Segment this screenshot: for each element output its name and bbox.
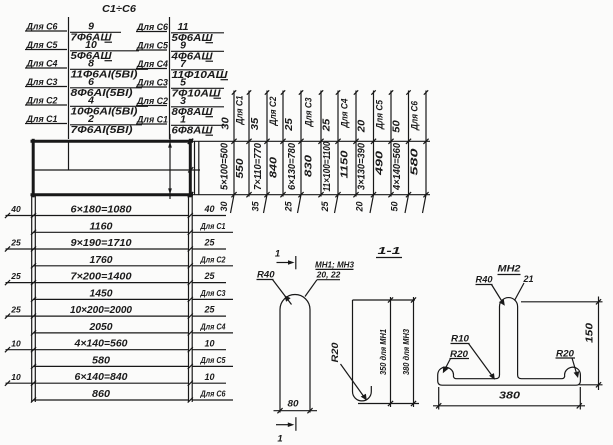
svg-text:9: 9	[180, 39, 186, 51]
svg-text:150: 150	[584, 323, 596, 343]
svg-text:25: 25	[203, 305, 215, 315]
svg-text:7×110=770: 7×110=770	[253, 143, 264, 190]
svg-text:1160: 1160	[90, 221, 113, 232]
svg-text:1: 1	[180, 113, 186, 125]
svg-text:30: 30	[221, 117, 232, 130]
svg-text:20, 22: 20, 22	[316, 270, 341, 280]
svg-text:R20: R20	[450, 349, 468, 359]
svg-text:10: 10	[204, 372, 214, 382]
svg-text:R20: R20	[556, 349, 574, 359]
svg-text:МН1; МН3: МН1; МН3	[315, 259, 354, 269]
svg-text:Для С3: Для С3	[304, 98, 314, 128]
svg-text:Для С6: Для С6	[136, 22, 169, 32]
svg-text:Для С2: Для С2	[26, 95, 58, 105]
svg-text:25: 25	[203, 271, 215, 281]
svg-text:25: 25	[10, 271, 21, 281]
svg-text:1150: 1150	[339, 150, 351, 178]
svg-text:580: 580	[92, 355, 110, 366]
svg-text:40: 40	[203, 204, 214, 214]
svg-text:11: 11	[178, 21, 189, 33]
svg-text:10: 10	[11, 372, 21, 382]
svg-text:4×140=560: 4×140=560	[392, 143, 403, 191]
svg-text:840: 840	[268, 157, 280, 178]
svg-text:6×180=1080: 6×180=1080	[71, 204, 132, 216]
svg-text:Для С1: Для С1	[200, 221, 226, 231]
svg-text:7Ф10АШ: 7Ф10АШ	[172, 89, 221, 100]
svg-text:R40: R40	[257, 270, 275, 280]
svg-text:580: 580	[409, 148, 421, 175]
svg-text:9: 9	[88, 20, 94, 32]
svg-text:Для С5: Для С5	[375, 99, 385, 130]
svg-text:380: 380	[499, 390, 520, 402]
svg-text:25: 25	[284, 201, 294, 213]
svg-text:11×100=1100: 11×100=1100	[322, 141, 333, 191]
svg-text:Для С3: Для С3	[136, 77, 168, 87]
svg-text:2: 2	[87, 113, 94, 125]
svg-text:R20: R20	[330, 342, 341, 363]
svg-text:1760: 1760	[90, 255, 113, 266]
svg-text:80: 80	[288, 399, 300, 410]
svg-text:Для С6: Для С6	[410, 100, 420, 131]
svg-text:1: 1	[275, 249, 280, 260]
svg-text:380 для МН3: 380 для МН3	[401, 329, 411, 375]
svg-text:25: 25	[322, 118, 333, 132]
svg-text:5: 5	[180, 76, 186, 88]
svg-text:30: 30	[219, 201, 229, 211]
svg-text:40: 40	[10, 204, 21, 214]
svg-text:Для С2: Для С2	[200, 254, 226, 264]
svg-text:Для С5: Для С5	[200, 355, 226, 365]
svg-text:Для С4: Для С4	[136, 59, 168, 69]
svg-text:35: 35	[251, 201, 261, 212]
svg-text:5×100=500: 5×100=500	[220, 143, 231, 190]
svg-text:1: 1	[277, 434, 282, 445]
svg-text:С1÷С6: С1÷С6	[102, 4, 136, 15]
svg-text:Для С4: Для С4	[340, 99, 350, 129]
svg-text:4: 4	[87, 94, 94, 106]
svg-text:490: 490	[374, 151, 386, 177]
svg-text:Для С4: Для С4	[200, 322, 226, 332]
svg-text:50: 50	[390, 201, 400, 211]
svg-text:Для С5: Для С5	[136, 40, 169, 50]
svg-text:Для С2: Для С2	[268, 97, 278, 127]
svg-text:8: 8	[88, 57, 94, 69]
svg-text:25: 25	[203, 238, 215, 248]
svg-text:550: 550	[234, 158, 246, 178]
svg-text:9×190=1710: 9×190=1710	[71, 237, 132, 249]
svg-text:Для С1: Для С1	[136, 114, 168, 124]
svg-text:7×200=1400: 7×200=1400	[71, 271, 132, 283]
svg-text:860: 860	[92, 389, 110, 400]
svg-text:Для С4: Для С4	[26, 58, 58, 68]
svg-text:350 для МН1: 350 для МН1	[378, 329, 388, 375]
svg-text:20: 20	[357, 119, 368, 133]
svg-text:830: 830	[303, 155, 315, 177]
svg-text:6×140=840: 6×140=840	[75, 371, 128, 383]
svg-text:R40: R40	[476, 275, 493, 285]
svg-text:1-1: 1-1	[378, 246, 402, 257]
svg-text:8Ф6АI(5ВI): 8Ф6АI(5ВI)	[71, 88, 134, 99]
svg-text:10: 10	[85, 39, 97, 51]
svg-text:6: 6	[88, 76, 94, 88]
svg-text:35: 35	[250, 117, 261, 130]
svg-text:Для С6: Для С6	[200, 389, 226, 399]
svg-text:4×140=560: 4×140=560	[74, 338, 128, 350]
svg-text:1450: 1450	[90, 288, 113, 299]
svg-text:R10: R10	[451, 334, 469, 344]
svg-text:Для С3: Для С3	[200, 288, 226, 298]
svg-text:Для С1: Для С1	[235, 96, 245, 126]
svg-text:Для С3: Для С3	[26, 77, 58, 87]
svg-text:МН2: МН2	[498, 264, 522, 275]
svg-text:25: 25	[10, 305, 21, 315]
svg-text:25: 25	[320, 201, 330, 213]
svg-text:3: 3	[180, 95, 186, 107]
svg-text:11Ф6АI(5ВI): 11Ф6АI(5ВI)	[71, 70, 139, 81]
svg-text:21: 21	[522, 274, 533, 284]
svg-text:7Ф6АI(5ВI): 7Ф6АI(5ВI)	[71, 125, 134, 136]
svg-text:25: 25	[284, 118, 295, 132]
svg-text:2050: 2050	[88, 322, 112, 333]
svg-text:6×130=780: 6×130=780	[287, 143, 298, 190]
svg-text:10: 10	[11, 338, 21, 348]
svg-text:Для С6: Для С6	[26, 21, 59, 31]
svg-text:10Ф6АI(5ВI): 10Ф6АI(5ВI)	[71, 107, 139, 118]
svg-text:Для С5: Для С5	[26, 40, 59, 50]
svg-text:20: 20	[355, 201, 365, 212]
svg-text:Для С1: Для С1	[26, 114, 58, 124]
svg-text:3×130=390: 3×130=390	[357, 143, 368, 190]
svg-text:10×200=2000: 10×200=2000	[70, 304, 132, 316]
svg-text:50: 50	[392, 120, 403, 133]
svg-text:10: 10	[204, 338, 214, 348]
svg-text:25: 25	[10, 238, 21, 248]
svg-text:Для С2: Для С2	[136, 96, 168, 106]
